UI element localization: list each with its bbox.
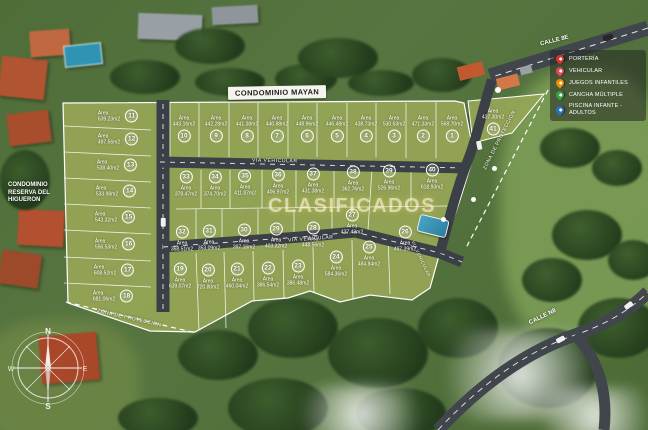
- lot-number-badge: 3: [388, 130, 401, 143]
- lot-area-label: Área403.32m2: [265, 238, 287, 250]
- lot-32[interactable]: 32Área368.51m2: [171, 226, 193, 253]
- lot-area-label: Área386.54m2: [257, 277, 279, 289]
- lot-number-badge: 5: [331, 130, 344, 143]
- lot-number-badge: 12: [125, 133, 138, 146]
- lot-area-label: Área639.23m2: [98, 110, 120, 122]
- lot-number-badge: 19: [174, 263, 187, 276]
- legend-pin-icon: [554, 53, 565, 64]
- lot-number-badge: 10: [178, 130, 191, 143]
- lot-3[interactable]: Área530.63m23: [383, 116, 405, 143]
- lot-23[interactable]: 23Área386.48m2: [287, 260, 309, 287]
- lot-number-badge: 35: [239, 170, 252, 183]
- legend-item-4: CANCHA MÚLTIPLE: [556, 91, 640, 99]
- lot-number-badge: 30: [238, 224, 251, 237]
- lot-1[interactable]: Área568.70m21: [441, 116, 463, 143]
- lot-area-label: Área568.70m2: [441, 116, 463, 128]
- legend-pin-icon: [554, 89, 565, 100]
- lot-area-label: Área538.40m2: [97, 159, 119, 171]
- lot-16[interactable]: Área556.53m216: [95, 238, 135, 251]
- lot-number-badge: 14: [123, 185, 136, 198]
- lot-area-label: Área720.80m2: [197, 279, 219, 291]
- lot-10[interactable]: Área443.16m210: [173, 116, 195, 143]
- lot-6[interactable]: Área448.96m26: [296, 116, 318, 143]
- lot-number-badge: 40: [426, 164, 439, 177]
- lot-area-label: Área353.09m2: [198, 240, 220, 252]
- lot-area-label: Área681.06m2: [93, 290, 115, 302]
- lot-7[interactable]: Área440.88m27: [266, 116, 288, 143]
- lot-number-badge: 7: [271, 130, 284, 143]
- lot-area-label: Área526.96m2: [378, 180, 400, 192]
- lot-34[interactable]: 34Área374.70m2: [204, 171, 226, 198]
- lot-area-label: Área446.48m2: [326, 116, 348, 128]
- lot-area-label: Área639.07m2: [169, 278, 191, 290]
- lot-31[interactable]: 31Área353.09m2: [198, 225, 220, 252]
- lot-number-badge: 31: [203, 225, 216, 238]
- lot-number-badge: 33: [180, 171, 193, 184]
- lot-area-label: Área608.52m2: [94, 264, 116, 276]
- site-plan-map: CONDOMINIO MAYAN CONDOMINIO RESERVA DEL …: [0, 0, 648, 430]
- legend-pin-icon: [554, 65, 565, 76]
- legend-item-2: VEHICULAR: [556, 67, 640, 75]
- lot-21[interactable]: 21Área460.04m2: [226, 263, 248, 290]
- lot-area-label: Área406.97m2: [267, 184, 289, 196]
- lot-area-label: Área437.43m2: [341, 224, 363, 236]
- legend-label: PISCINA INFANTE - ADULTOS: [569, 103, 640, 116]
- lot-38[interactable]: 38Área362.76m2: [342, 166, 364, 193]
- lot-area-label: Área533.98m2: [96, 185, 118, 197]
- legend-item-3: JUEGOS INFANTILES: [556, 79, 640, 87]
- lot-number-badge: 1: [446, 130, 459, 143]
- lot-29[interactable]: 29Área403.32m2: [265, 223, 287, 250]
- lot-11[interactable]: Área639.23m211: [98, 110, 138, 123]
- lot-area-label: Área374.70m2: [204, 186, 226, 198]
- lot-25[interactable]: 25Área484.84m2: [358, 241, 380, 268]
- compass-n: N: [45, 327, 51, 336]
- legend-label: CANCHA MÚLTIPLE: [569, 92, 623, 99]
- lot-number-badge: 8: [241, 130, 254, 143]
- compass-rose: N E S W: [6, 326, 90, 410]
- lot-9[interactable]: Área442.28m29: [205, 116, 227, 143]
- road-label-via-vehicular-1: VIA VEHICULAR: [252, 158, 298, 165]
- lot-number-badge: 29: [270, 223, 283, 236]
- lot-area-label: Área497.56m2: [98, 133, 120, 145]
- legend-item-1: PORTERÍA: [556, 55, 640, 63]
- lot-36[interactable]: 36Área406.97m2: [267, 169, 289, 196]
- legend-pin-icon: [554, 77, 565, 88]
- lot-30[interactable]: 30Área397.16m2: [233, 224, 255, 251]
- legend-item-5: PISCINA INFANTE - ADULTOS: [556, 103, 640, 116]
- neighbor-condo-label: CONDOMINIO RESERVA DEL HIGUERON: [8, 182, 50, 205]
- lot-8[interactable]: Área441.38m28: [236, 116, 258, 143]
- lot-area-label: Área556.53m2: [95, 238, 117, 250]
- legend-label: JUEGOS INFANTILES: [569, 80, 628, 87]
- lot-area-label: Área460.04m2: [226, 278, 248, 290]
- lot-12[interactable]: Área497.56m212: [98, 133, 138, 146]
- compass-w: W: [8, 366, 15, 373]
- lot-4[interactable]: Área438.73m24: [355, 116, 377, 143]
- lot-number-badge: 41: [487, 123, 500, 136]
- lot-number-badge: 16: [122, 238, 135, 251]
- lot-area-label: Área438.73m2: [355, 116, 377, 128]
- title-banner-text: CONDOMINIO MAYAN: [235, 87, 319, 97]
- lot-area-label: Área362.76m2: [342, 181, 364, 193]
- lot-14[interactable]: Área533.98m214: [96, 185, 136, 198]
- neighbor-condo-line3: HIGUERON: [8, 197, 50, 205]
- lot-area-label: Área411.87m2: [234, 185, 256, 197]
- lot-35[interactable]: 35Área411.87m2: [234, 170, 256, 197]
- lot-area-label: Área368.51m2: [171, 241, 193, 253]
- lot-2[interactable]: Área471.33m22: [412, 116, 434, 143]
- lot-22[interactable]: 22Área386.54m2: [257, 262, 279, 289]
- lot-number-badge: 11: [125, 110, 138, 123]
- lot-area-label: Área618.93m2: [421, 179, 443, 191]
- lot-13[interactable]: Área538.40m213: [97, 159, 137, 172]
- lot-20[interactable]: 20Área720.80m2: [197, 264, 219, 291]
- lot-number-badge: 24: [330, 251, 343, 264]
- lot-number-badge: 34: [209, 171, 222, 184]
- lot-number-badge: 38: [347, 166, 360, 179]
- lot-number-badge: 6: [301, 130, 314, 143]
- lot-24[interactable]: 24Área584.36m2: [325, 251, 347, 278]
- lot-5[interactable]: Área446.48m25: [326, 116, 348, 143]
- lot-area-label: Área484.84m2: [358, 256, 380, 268]
- lot-area-label: Área442.28m2: [205, 116, 227, 128]
- neighbor-condo-line2: RESERVA DEL: [8, 190, 50, 198]
- lot-17[interactable]: Área608.52m217: [94, 264, 134, 277]
- car-icon: [161, 218, 166, 227]
- lot-number-badge: 37: [307, 168, 320, 181]
- lot-area-label: Área471.33m2: [412, 116, 434, 128]
- compass-e: E: [83, 366, 88, 373]
- road-branch: [575, 335, 605, 430]
- title-banner: CONDOMINIO MAYAN: [228, 85, 326, 100]
- lot-area-label: Área530.63m2: [383, 116, 405, 128]
- lot-number-badge: 15: [122, 211, 135, 224]
- lot-33[interactable]: 33Área378.47m2: [175, 171, 197, 198]
- lot-number-badge: 36: [272, 169, 285, 182]
- lot-area-label: Área584.36m2: [325, 266, 347, 278]
- lot-number-badge: 4: [360, 130, 373, 143]
- lot-area-label: Área443.16m2: [173, 116, 195, 128]
- compass-s: S: [45, 402, 51, 410]
- lot-number-badge: 2: [417, 130, 430, 143]
- lot-number-badge: 18: [120, 290, 133, 303]
- lot-number-badge: 20: [202, 264, 215, 277]
- lot-area-label: Área448.96m2: [296, 116, 318, 128]
- lot-number-badge: 23: [292, 260, 305, 273]
- lot-number-badge: 17: [121, 264, 134, 277]
- lot-number-badge: 9: [210, 130, 223, 143]
- lot-number-badge: 22: [262, 262, 275, 275]
- lot-area-label: Área378.47m2: [175, 186, 197, 198]
- lot-number-badge: 26: [399, 226, 412, 239]
- lot-number-badge: 21: [231, 263, 244, 276]
- lot-area-label: Área441.38m2: [236, 116, 258, 128]
- legend-label: VEHICULAR: [569, 68, 602, 75]
- lot-18[interactable]: Área681.06m218: [93, 290, 133, 303]
- lot-39[interactable]: 39Área526.96m2: [378, 165, 400, 192]
- lot-number-badge: 13: [124, 159, 137, 172]
- lot-area-label: Área440.88m2: [266, 116, 288, 128]
- legend: PORTERÍAVEHICULARJUEGOS INFANTILESCANCHA…: [550, 50, 646, 121]
- neighbor-condo-line1: CONDOMINIO: [8, 182, 50, 190]
- lot-number-badge: 39: [383, 165, 396, 178]
- lot-40[interactable]: 40Área618.93m2: [421, 164, 443, 191]
- lot-area-label: Área543.32m2: [95, 211, 117, 223]
- lot-area-label: Área431.38m2: [302, 183, 324, 195]
- lot-area-label: Área437.30m2: [482, 109, 504, 121]
- lot-19[interactable]: 19Área639.07m2: [169, 263, 191, 290]
- watermark: CLASIFICADOS: [268, 195, 436, 218]
- lot-15[interactable]: Área543.32m215: [95, 211, 135, 224]
- lot-number-badge: 28: [307, 222, 320, 235]
- lot-number-badge: 32: [176, 226, 189, 239]
- legend-pin-icon: [554, 104, 565, 115]
- lot-number-badge: 25: [363, 241, 376, 254]
- legend-label: PORTERÍA: [569, 56, 599, 63]
- lot-37[interactable]: 37Área431.38m2: [302, 168, 324, 195]
- lot-area-label: Área397.16m2: [233, 239, 255, 251]
- lot-area-label: Área386.48m2: [287, 275, 309, 287]
